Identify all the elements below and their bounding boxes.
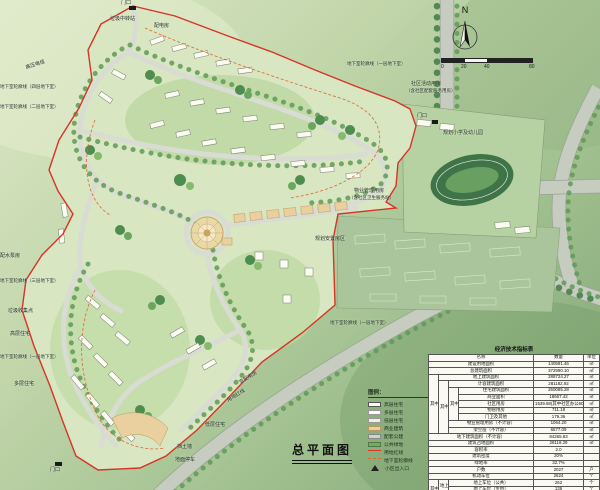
central-plaza [191,217,223,249]
label-planned-school: 规划小学及幼儿园 [443,131,483,136]
scale-tick-80: 80 [529,64,535,70]
table-row: 建筑占地面积28118.29㎡ [429,440,600,447]
table-title: 经济技术指标表 [428,345,600,353]
north-label: N [462,5,469,15]
school-site [402,104,545,238]
table-row: 架空层（不计容）6577.09㎡ [429,427,600,434]
scale-tick-0: 0 [441,64,444,70]
table-row: 地下建筑面积（不计容）84265.83㎡ [429,434,600,441]
label-gate-north: 门口 [121,1,131,6]
label-basement-2f: 地下室轮廓线（二层地下室） [0,105,59,110]
label-surface-parking: 地面停车 [175,458,195,463]
legend-swatch-public [368,434,381,439]
legend-item: 高层住宅 [368,400,430,408]
legend-item: 配套公建 [368,432,430,440]
legend-item: 地下室轮廓线 [368,456,430,464]
table-row: 地上车位（专用）136个 [429,486,600,490]
legend: 图例： 高层住宅 多层住宅 低层住宅 商业建筑 配套公建 公共绿地 用地红线 地… [368,388,430,472]
label-community-room-sub: （含社区配套服务用房） [406,89,456,94]
legend-item: 商业建筑 [368,424,430,432]
label-property-mgmt-sub: （含社区卫生服务站） [349,196,394,201]
economic-indicators-table: 名称数量单位 建设用地面积140591.46㎡ 总建筑面积372990.10㎡ … [428,354,600,490]
legend-item: 用地红线 [368,448,430,456]
legend-swatch-green [368,442,381,447]
table-header-row: 名称数量单位 [429,355,600,362]
table-row: 其中计容建筑面积281182.92㎡ [429,381,600,388]
label-basement-1f-west: 地下室轮廓线（一层地下室） [0,355,59,360]
legend-item: 多层住宅 [368,408,430,416]
table-row: 总建筑面积372990.10㎡ [429,368,600,375]
label-water-pump-room: 配水泵房 [0,254,20,259]
legend-swatch-lowrise [368,418,381,423]
label-retaining-wall: 挡土墙 [177,445,192,450]
legend-swatch-midrise [368,410,381,415]
label-resettlement-area: 规划安置房区 [315,237,345,242]
label-garbage-point: 垃圾收集点 [8,309,33,314]
table-row: 建筑密度20% [429,453,600,460]
page-title: 总平面图 [292,441,352,464]
table-row: 其中地上建筑面积288724.27㎡ [429,374,600,381]
label-gate-south: 门口 [50,468,60,473]
legend-title: 图例： [368,388,430,398]
label-basement-3f: 地下室轮廓线（三层地下室） [0,279,59,284]
scale-tick-40: 40 [484,64,490,70]
label-basement-1f-south: 地下室轮廓线（一层地下室） [330,321,389,326]
legend-item: 公共绿地 [368,440,430,448]
legend-swatch-commercial [368,426,381,431]
legend-item: 小区出入口 [368,464,430,472]
table-row: 其中地上车位地上车位（公共）262个 [429,480,600,487]
label-property-mgmt: 物业管理用房 [354,189,384,194]
table-row: 户数2027户 [429,467,600,474]
legend-swatch-basement-line [368,458,381,463]
label-lowrise: 低层住宅 [205,423,225,428]
legend-swatch-redline [368,450,381,455]
label-gate-east: 门口 [417,114,427,119]
legend-swatch-entrance [371,465,379,471]
label-midrise: 多层住宅 [14,382,34,387]
label-community-room: 社区活动用房 [411,82,441,87]
legend-swatch-highrise [368,402,381,407]
label-power-room: 配电房 [154,24,169,29]
scale-bar: 0 20 40 80 [441,58,533,70]
table-row: 容积率2.0 [429,447,600,454]
label-garbage-transfer: 垃圾中转站 [110,17,135,22]
table-row: 机动车位2624个 [429,473,600,480]
north-arrow: N [450,3,480,61]
label-highrise: 高层住宅 [10,332,30,337]
table-row: 绿地率32.7% [429,460,600,467]
site-plan-sheet: 门口 垃圾中转站 配电房 高压电缆 地下室轮廓线（四层地下室） 地下室轮廓线（二… [0,0,600,490]
label-basement-4f: 地下室轮廓线（四层地下室） [0,85,59,90]
table-row: 物业管理用房（不计容）1064.20㎡ [429,420,600,427]
table-row: 其中住宅建筑面积260085.28㎡ [429,387,600,394]
label-basement-1f-north: 地下室轮廓线（一层地下室） [347,62,406,67]
legend-item: 低层住宅 [368,416,430,424]
scale-tick-20: 20 [461,64,467,70]
table-row: 建设用地面积140591.46㎡ [429,361,600,368]
economic-indicators-panel: 经济技术指标表 名称数量单位 建设用地面积140591.46㎡ 总建筑面积372… [428,345,600,490]
